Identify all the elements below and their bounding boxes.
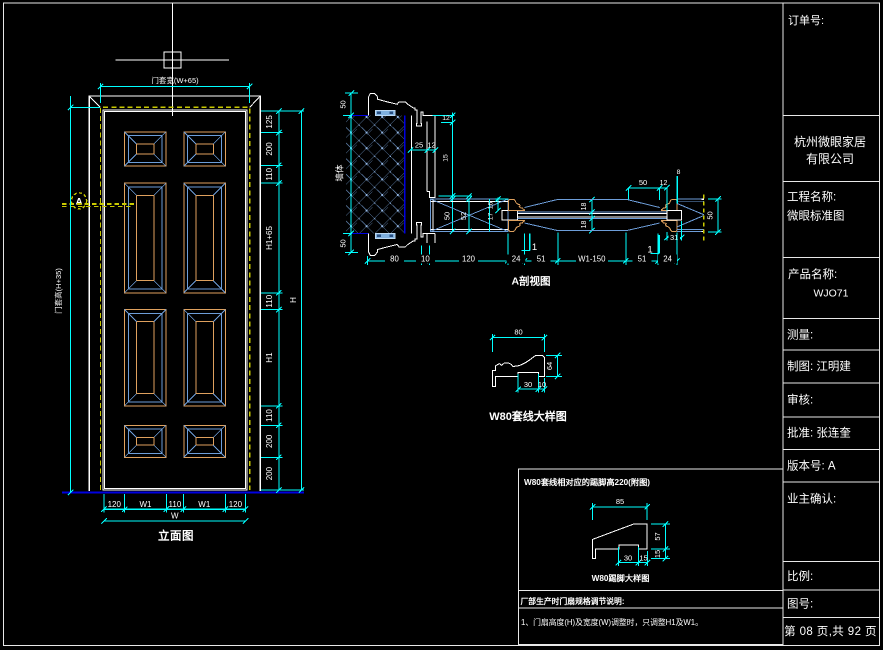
svg-text:51: 51: [638, 255, 647, 264]
svg-text:1: 1: [647, 245, 652, 256]
svg-text:WJO71: WJO71: [813, 288, 848, 300]
svg-text:10: 10: [421, 255, 430, 264]
svg-text:批准: 张连奎: 批准: 张连奎: [787, 426, 851, 440]
svg-text:订单号:: 订单号:: [788, 14, 824, 27]
svg-text:W80踢脚大样图: W80踢脚大样图: [592, 573, 650, 583]
svg-text:1: 1: [532, 242, 537, 253]
svg-text:墙体: 墙体: [335, 164, 345, 182]
svg-text:15: 15: [442, 154, 449, 162]
svg-text:24: 24: [663, 255, 672, 264]
svg-text:W1-150: W1-150: [578, 255, 606, 264]
svg-text:H1+65: H1+65: [265, 226, 274, 250]
svg-text:200: 200: [265, 466, 274, 480]
svg-text:50: 50: [339, 100, 348, 108]
svg-text:110: 110: [265, 167, 274, 180]
svg-text:30: 30: [624, 553, 632, 562]
svg-text:门套高(H+35): 门套高(H+35): [53, 268, 63, 314]
svg-text:版本号: A: 版本号: A: [787, 459, 836, 473]
svg-text:50: 50: [706, 211, 715, 219]
svg-text:12: 12: [660, 180, 668, 187]
svg-text:8: 8: [677, 169, 681, 176]
svg-text:W1: W1: [198, 500, 211, 509]
svg-text:85: 85: [616, 497, 624, 506]
svg-text:52: 52: [459, 212, 468, 220]
svg-text:64: 64: [545, 362, 554, 370]
svg-text:120: 120: [108, 500, 122, 509]
svg-text:200: 200: [265, 142, 274, 156]
svg-text:120: 120: [462, 255, 476, 264]
svg-text:15: 15: [639, 553, 647, 562]
svg-text:制图: 江明建: 制图: 江明建: [787, 359, 851, 373]
svg-text:125: 125: [265, 115, 274, 129]
svg-text:18: 18: [581, 221, 588, 229]
svg-text:12: 12: [427, 141, 435, 150]
svg-text:110: 110: [265, 409, 274, 422]
svg-text:H1: H1: [265, 352, 274, 363]
svg-text:测量:: 测量:: [787, 329, 813, 342]
svg-text:1、门扇高度(H)及宽度(W)调整时，只调整H1及W1。: 1、门扇高度(H)及宽度(W)调整时，只调整H1及W1。: [521, 617, 703, 627]
svg-text:57: 57: [653, 532, 662, 540]
svg-text:W80套线大样图: W80套线大样图: [489, 409, 567, 423]
svg-text:比例:: 比例:: [787, 569, 813, 583]
svg-text:25: 25: [415, 141, 423, 150]
svg-text:图号:: 图号:: [787, 598, 813, 611]
svg-text:51: 51: [537, 255, 546, 264]
svg-text:17: 17: [488, 213, 495, 221]
svg-text:110: 110: [169, 500, 182, 509]
svg-text:15: 15: [653, 550, 662, 558]
svg-text:200: 200: [265, 434, 274, 448]
svg-text:80: 80: [514, 328, 522, 337]
svg-text:24: 24: [512, 255, 521, 264]
svg-text:第 08 页,共 92 页: 第 08 页,共 92 页: [784, 624, 877, 638]
svg-text:80: 80: [390, 255, 399, 264]
svg-text:杭州微眼家居: 杭州微眼家居: [794, 134, 866, 149]
svg-text:30: 30: [524, 380, 532, 389]
svg-text:审核:: 审核:: [787, 393, 813, 407]
svg-text:W80套线相对应的踢脚高220(附图): W80套线相对应的踢脚高220(附图): [524, 477, 650, 487]
svg-text:18: 18: [581, 203, 588, 211]
svg-text:微眼标准图: 微眼标准图: [787, 209, 845, 223]
svg-text:W1: W1: [140, 500, 153, 509]
svg-text:50: 50: [442, 212, 451, 220]
svg-text:W: W: [171, 512, 179, 521]
svg-text:110: 110: [265, 294, 274, 307]
svg-text:A剖视图: A剖视图: [511, 275, 550, 288]
svg-text:50: 50: [639, 178, 647, 187]
svg-text:立面图: 立面图: [158, 528, 194, 542]
svg-text:H: H: [289, 297, 298, 303]
svg-text:厂部生产时门扇规格调节说明:: 厂部生产时门扇规格调节说明:: [521, 596, 625, 606]
svg-text:120: 120: [229, 500, 243, 509]
svg-text:业主确认:: 业主确认:: [787, 493, 836, 506]
svg-text:工程名称:: 工程名称:: [787, 190, 836, 204]
svg-text:50: 50: [339, 239, 348, 247]
svg-text:产品名称:: 产品名称:: [788, 267, 837, 281]
svg-text:有限公司: 有限公司: [806, 152, 854, 166]
svg-text:12: 12: [442, 115, 450, 122]
svg-text:门套宽(W+65): 门套宽(W+65): [151, 75, 199, 85]
svg-text:10: 10: [538, 380, 546, 389]
svg-text:16: 16: [488, 202, 495, 210]
